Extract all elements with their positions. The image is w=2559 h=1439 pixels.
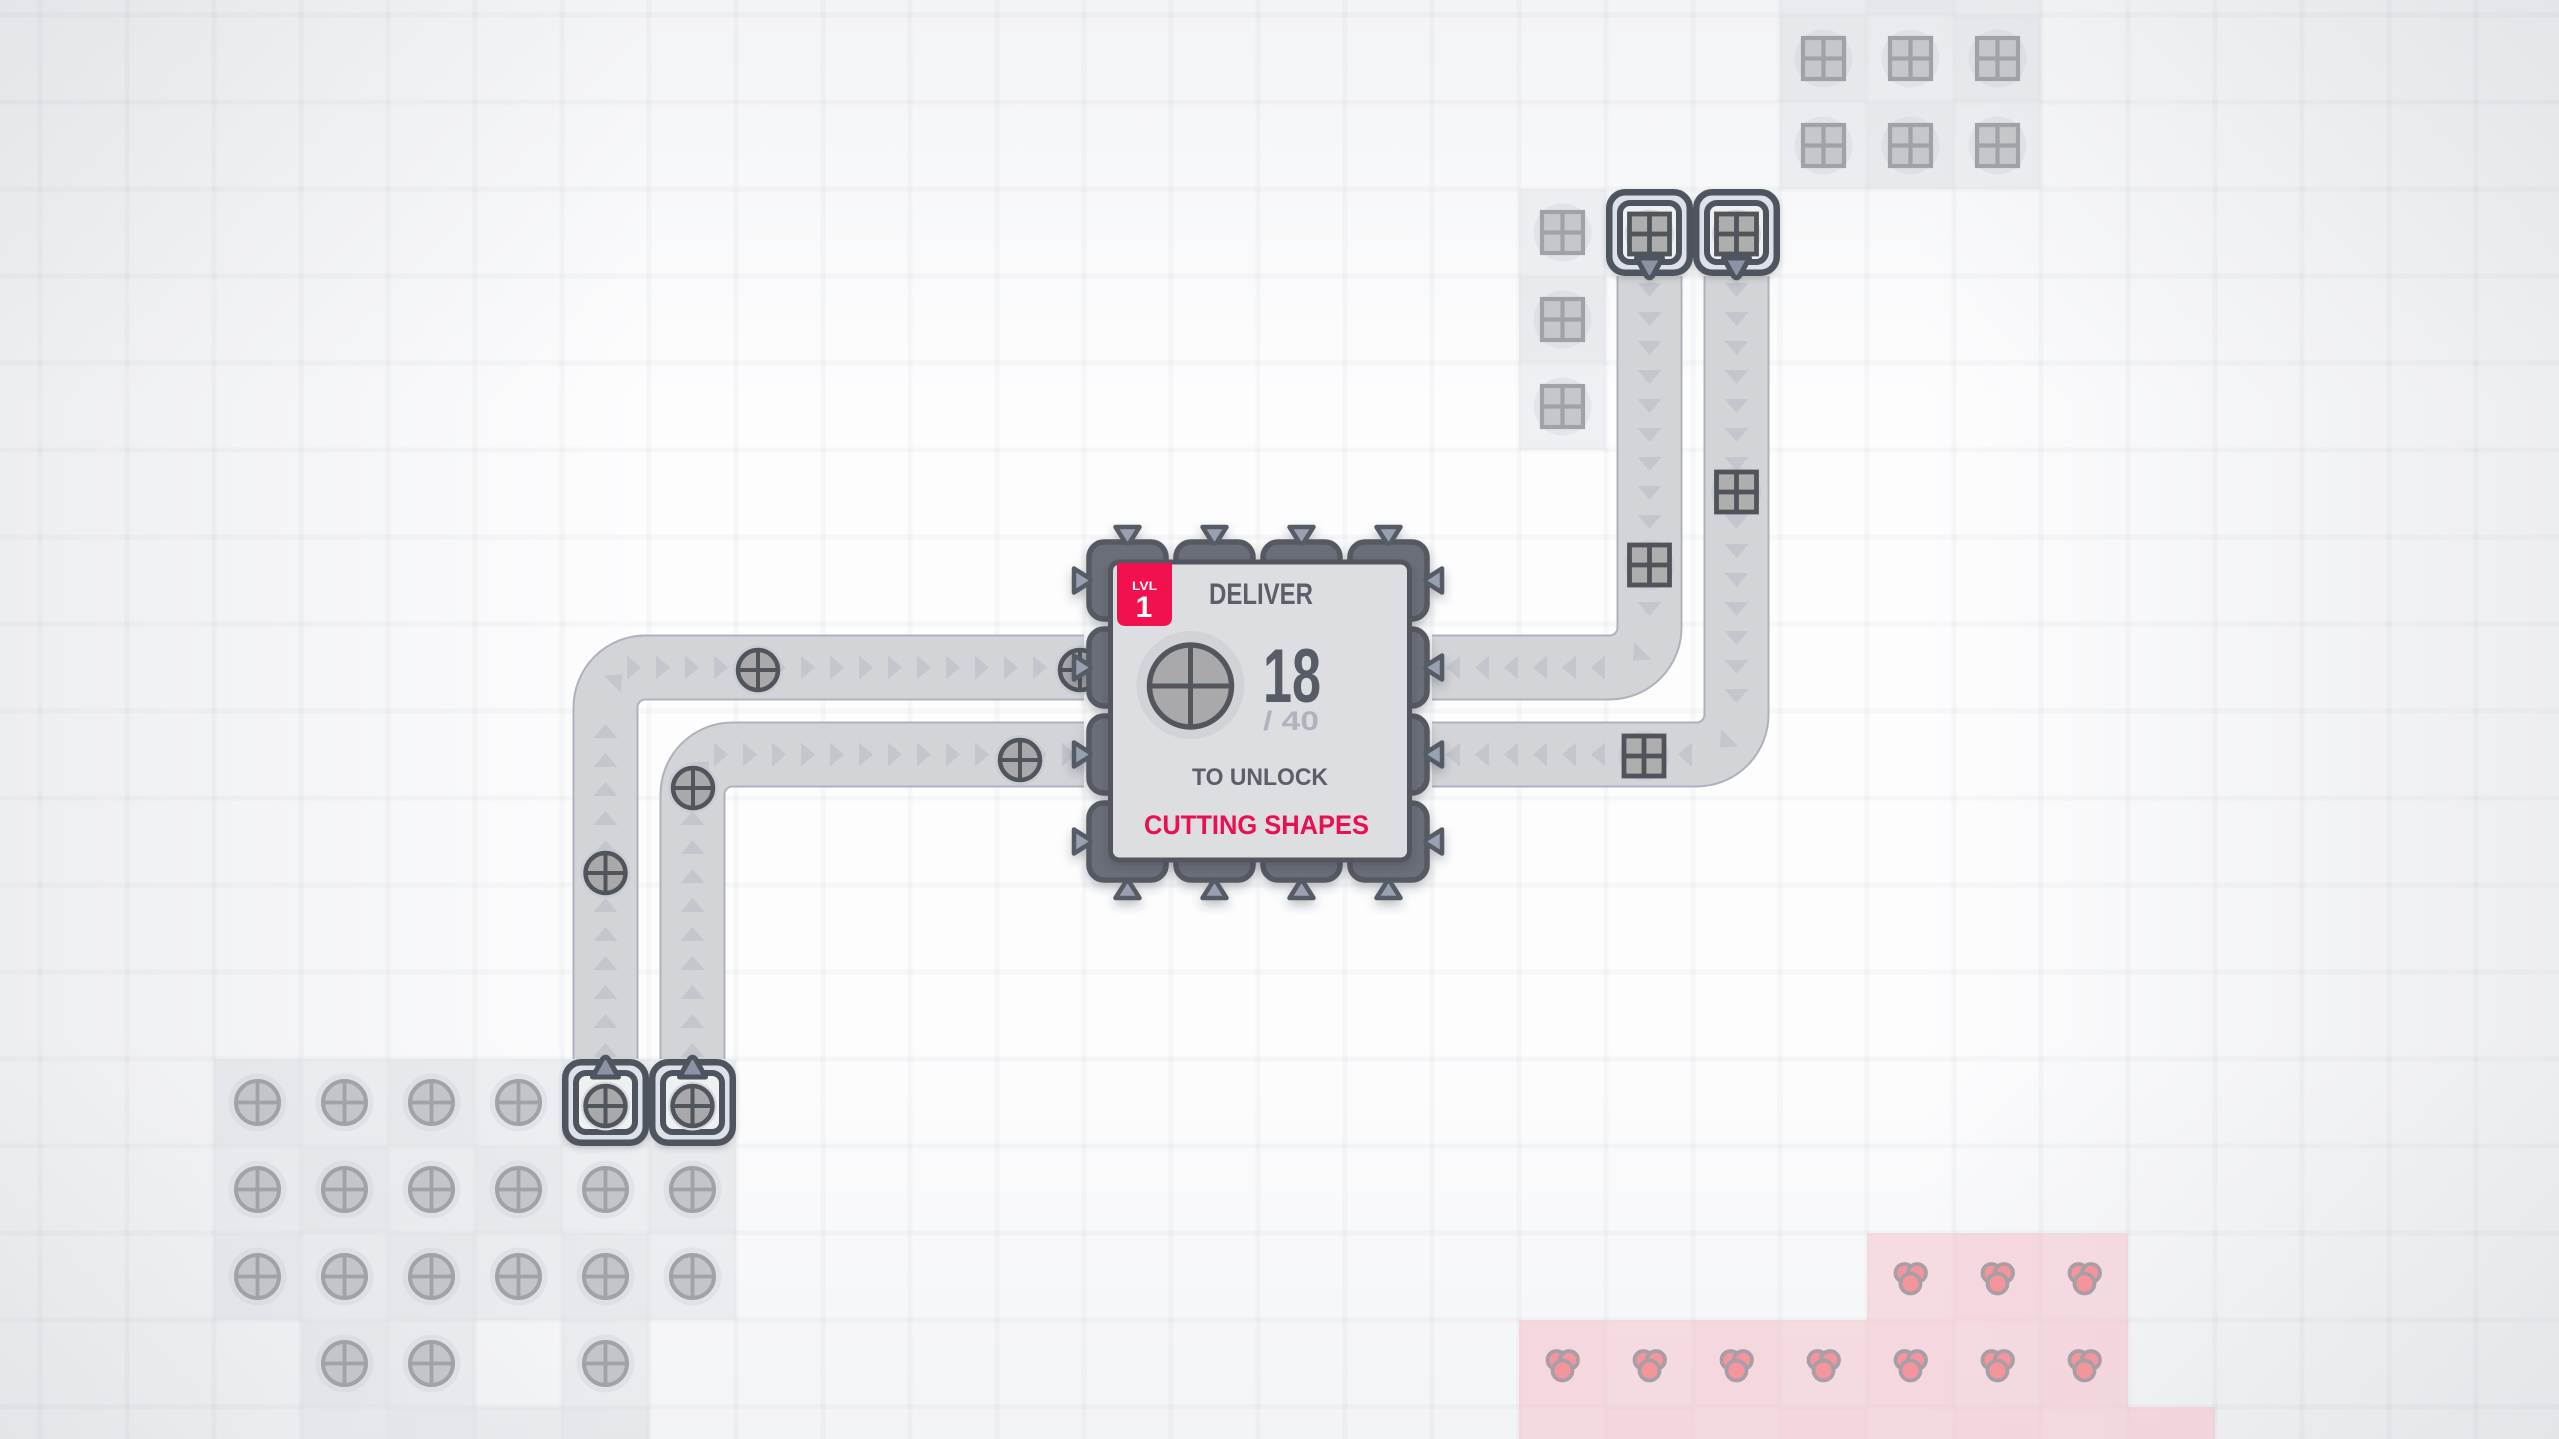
svg-text:/ 40: / 40: [1263, 706, 1319, 736]
svg-text:DELIVER: DELIVER: [1209, 578, 1313, 611]
svg-text:CUTTING SHAPES: CUTTING SHAPES: [1144, 810, 1369, 840]
svg-text:1: 1: [1136, 591, 1153, 624]
svg-text:TO UNLOCK: TO UNLOCK: [1192, 764, 1329, 791]
